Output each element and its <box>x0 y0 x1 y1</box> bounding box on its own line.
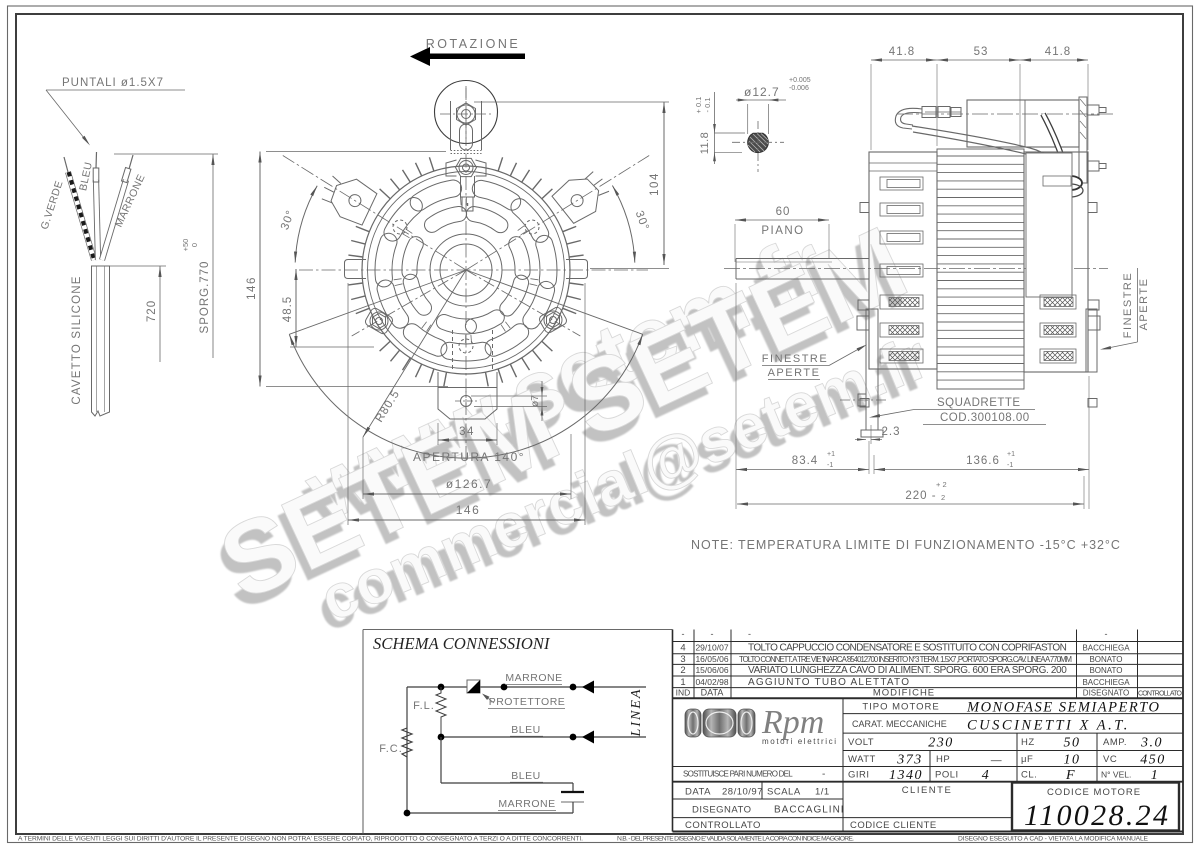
svg-text:PUNTALI ø1.5X7: PUNTALI ø1.5X7 <box>62 77 164 89</box>
svg-text:+1: +1 <box>1007 451 1015 458</box>
svg-text:SCALA: SCALA <box>767 787 801 798</box>
svg-text:-: - <box>711 629 714 639</box>
svg-text:ø12.7: ø12.7 <box>744 85 780 99</box>
svg-text:-: - <box>682 629 685 639</box>
svg-text:+0.005: +0.005 <box>789 77 811 84</box>
svg-text:BONATO: BONATO <box>1089 655 1122 664</box>
svg-text:-: - <box>1105 629 1108 639</box>
svg-text:COD.300108.00: COD.300108.00 <box>940 412 1030 424</box>
svg-text:+ 2: + 2 <box>936 480 947 489</box>
svg-text:220 -: 220 - <box>905 490 936 502</box>
svg-text:104: 104 <box>649 172 661 196</box>
svg-text:BACCHIEGA: BACCHIEGA <box>1082 678 1130 687</box>
svg-text:BACCAGLINI: BACCAGLINI <box>774 805 845 816</box>
svg-text:N.B. - DEL PRESENTE DISEGNO E': N.B. - DEL PRESENTE DISEGNO E' VALIDA SO… <box>617 836 854 843</box>
svg-text:GIRI: GIRI <box>848 770 870 781</box>
svg-text:CONTROLLATO: CONTROLLATO <box>1138 691 1183 698</box>
svg-text:CLIENTE: CLIENTE <box>902 785 953 796</box>
svg-text:BONATO: BONATO <box>1089 666 1122 675</box>
svg-text:VC: VC <box>1103 754 1117 765</box>
svg-text:ROTAZIONE: ROTAZIONE <box>426 37 521 51</box>
svg-text:CAVETTO SILICONE: CAVETTO SILICONE <box>71 275 83 404</box>
svg-text:-: - <box>822 769 825 780</box>
svg-text:-1: -1 <box>827 462 833 469</box>
svg-text:F: F <box>1065 768 1076 783</box>
svg-text:136.6: 136.6 <box>966 455 1000 467</box>
svg-text:+1: +1 <box>827 451 835 458</box>
svg-text:TOLTO CAPPUCCIO CONDENSATORE E: TOLTO CAPPUCCIO CONDENSATORE E SOSTITUIT… <box>748 643 1068 654</box>
svg-text:F.C.: F.C. <box>379 743 403 755</box>
svg-text:1: 1 <box>680 677 685 688</box>
svg-text:APERTE: APERTE <box>768 367 821 379</box>
svg-text:1/1: 1/1 <box>815 787 830 798</box>
svg-text:+ 0.1: + 0.1 <box>694 97 703 114</box>
svg-text:MONOFASE SEMIAPERTO: MONOFASE SEMIAPERTO <box>966 700 1161 716</box>
svg-text:230: 230 <box>928 736 954 751</box>
svg-text:15/06/06: 15/06/06 <box>695 665 728 675</box>
svg-text:-1: -1 <box>1007 462 1013 469</box>
svg-text:28/10/97: 28/10/97 <box>722 787 763 798</box>
svg-text:3.0: 3.0 <box>1140 736 1163 751</box>
svg-text:10: 10 <box>1064 753 1081 768</box>
svg-text:BACCHIEGA: BACCHIEGA <box>1082 644 1130 653</box>
svg-text:1340: 1340 <box>889 768 923 783</box>
svg-text:- 0.1: - 0.1 <box>703 97 712 112</box>
svg-text:-0.006: -0.006 <box>789 85 809 92</box>
svg-text:4: 4 <box>982 768 991 783</box>
svg-text:29/10/07: 29/10/07 <box>695 643 728 653</box>
svg-text:FINESTRE: FINESTRE <box>1122 272 1134 338</box>
svg-text:SPORG.770: SPORG.770 <box>199 261 211 334</box>
svg-text:50: 50 <box>1064 736 1081 751</box>
svg-text:AGGIUNTO TUBO ALETTATO: AGGIUNTO TUBO ALETTATO <box>748 677 910 688</box>
svg-text:DISEGNATO: DISEGNATO <box>692 805 752 816</box>
svg-text:CODICE MOTORE: CODICE MOTORE <box>1047 787 1141 798</box>
svg-text:SCHEMA CONNESSIONI: SCHEMA CONNESSIONI <box>373 634 551 653</box>
svg-text:+50: +50 <box>181 239 190 252</box>
svg-text:NOTE: TEMPERATURA LIMITE DI FU: NOTE: TEMPERATURA LIMITE DI FUNZIONAMENT… <box>691 538 1121 552</box>
svg-text:60: 60 <box>776 206 791 218</box>
svg-text:SQUADRETTE: SQUADRETTE <box>937 397 1021 409</box>
svg-text:DISEGNATO: DISEGNATO <box>1083 689 1129 698</box>
svg-text:A TERMINI DELLE VIGENTI LEGGI: A TERMINI DELLE VIGENTI LEGGI SUI DIRITT… <box>18 836 583 843</box>
svg-text:FINESTRE: FINESTRE <box>762 353 828 365</box>
svg-text:720: 720 <box>146 300 158 322</box>
svg-text:AMP.: AMP. <box>1103 737 1127 748</box>
svg-text:WATT: WATT <box>848 754 876 765</box>
svg-text:SOSTITUISCE PARI NUMERO DEL: SOSTITUISCE PARI NUMERO DEL <box>683 770 793 779</box>
svg-text:F.L.: F.L. <box>413 700 435 712</box>
svg-text:DATA: DATA <box>701 688 724 698</box>
svg-text:HP: HP <box>936 754 950 765</box>
svg-text:—: — <box>990 753 1003 767</box>
svg-text:2: 2 <box>941 493 945 502</box>
svg-text:41.8: 41.8 <box>889 46 915 58</box>
svg-text:VARIATO LUNGHEZZA CAVO DI ALIM: VARIATO LUNGHEZZA CAVO DI ALIMENT. SPORG… <box>748 665 1068 676</box>
svg-text:53: 53 <box>974 46 989 58</box>
svg-text:373: 373 <box>896 753 923 768</box>
svg-text:MARRONE: MARRONE <box>498 798 555 810</box>
svg-text:146: 146 <box>246 276 258 300</box>
svg-text:-: - <box>748 629 751 639</box>
svg-text:LINEA: LINEA <box>629 688 644 738</box>
svg-text:146: 146 <box>456 503 481 517</box>
svg-text:41.8: 41.8 <box>1045 46 1071 58</box>
svg-text:34: 34 <box>459 426 475 438</box>
svg-text:DISEGNO ESEGUITO A CAD - VIETA: DISEGNO ESEGUITO A CAD - VIETATA LA MODI… <box>958 836 1149 843</box>
svg-text:CL.: CL. <box>1021 770 1037 781</box>
svg-text:2: 2 <box>680 665 685 676</box>
svg-text:450: 450 <box>1140 753 1166 768</box>
svg-text:CODICE CLIENTE: CODICE CLIENTE <box>850 820 937 831</box>
svg-text:μF: μF <box>1021 754 1033 765</box>
svg-text:ø7: ø7 <box>529 395 541 407</box>
svg-text:APERTE: APERTE <box>1138 278 1150 331</box>
svg-text:3: 3 <box>680 654 685 665</box>
svg-text:motori elettrici: motori elettrici <box>762 737 836 746</box>
svg-text:83.4: 83.4 <box>792 455 818 467</box>
svg-text:0: 0 <box>190 243 199 247</box>
svg-text:48.5: 48.5 <box>282 296 294 322</box>
svg-text:IND: IND <box>676 688 691 698</box>
svg-text:110028.24: 110028.24 <box>1024 799 1170 832</box>
svg-text:2.3: 2.3 <box>882 426 901 438</box>
svg-text:Rpm: Rpm <box>761 704 824 741</box>
svg-text:CARAT. MECCANICHE: CARAT. MECCANICHE <box>852 719 947 729</box>
svg-text:MODIFICHE: MODIFICHE <box>873 688 935 699</box>
svg-text:BLEU: BLEU <box>511 724 540 736</box>
svg-text:11.8: 11.8 <box>699 132 711 155</box>
svg-text:BLEU: BLEU <box>511 770 540 782</box>
svg-text:CONTROLLATO: CONTROLLATO <box>685 820 761 831</box>
svg-text:4: 4 <box>680 643 685 654</box>
svg-text:TIPO MOTORE: TIPO MOTORE <box>862 702 939 713</box>
svg-text:MARRONE: MARRONE <box>505 672 562 684</box>
svg-text:APERTURA 140°: APERTURA 140° <box>413 450 525 464</box>
svg-text:04/02/98: 04/02/98 <box>695 677 728 687</box>
svg-text:PROTETTORE: PROTETTORE <box>489 696 566 708</box>
svg-text:ø126.7: ø126.7 <box>446 477 492 491</box>
svg-text:1: 1 <box>1151 768 1160 783</box>
svg-text:N° VEL.: N° VEL. <box>1101 770 1131 780</box>
svg-text:16/05/06: 16/05/06 <box>695 654 728 664</box>
svg-text:TOLTO CONNETT. A TRE VIE 'INAR: TOLTO CONNETT. A TRE VIE 'INARCA '854012… <box>739 655 1072 664</box>
svg-text:VOLT: VOLT <box>848 737 874 748</box>
svg-text:POLI: POLI <box>935 770 959 781</box>
svg-text:HZ: HZ <box>1021 737 1035 748</box>
svg-text:CUSCINETTI X A.T.: CUSCINETTI X A.T. <box>967 718 1130 734</box>
svg-text:DATA: DATA <box>685 787 711 798</box>
svg-text:PIANO: PIANO <box>761 225 804 237</box>
